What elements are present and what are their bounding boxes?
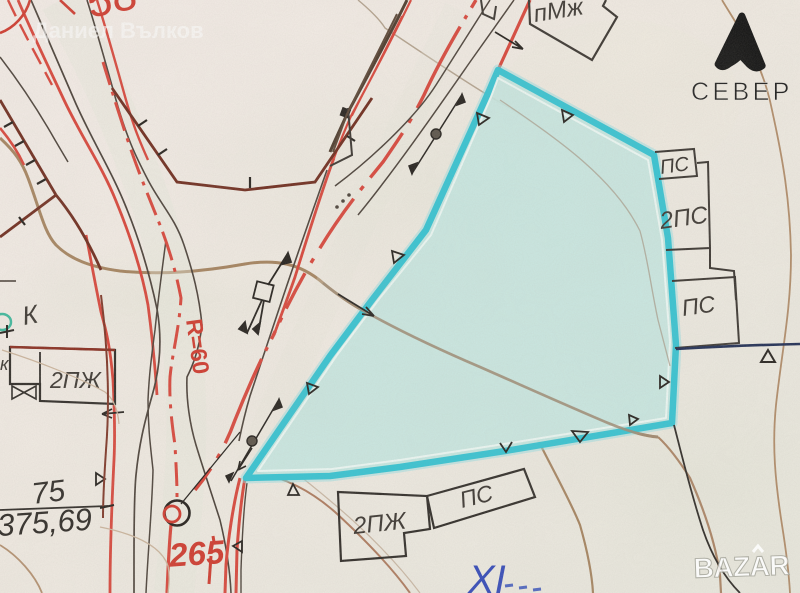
svg-text:BAZAR: BAZAR <box>693 550 790 584</box>
